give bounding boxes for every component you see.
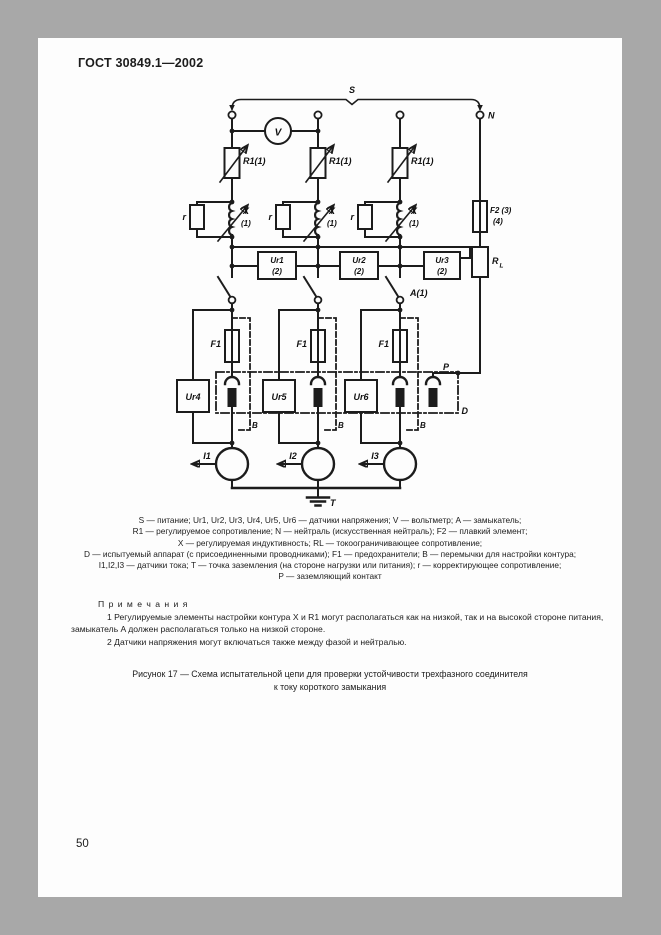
notes-heading: П р и м е ч а н и я [71,598,623,611]
phase-terminal [314,111,321,118]
voltmeter: V [230,118,321,144]
switch-hinge [397,297,404,304]
label-p: P [443,362,450,372]
supply-bracket: S [229,85,483,111]
current-sensor [216,448,248,480]
bracket-arrow-right [477,105,483,111]
label-rl: R [492,256,499,266]
label-ur2: Ur2 [352,256,366,265]
current-sensor-label: I3 [371,451,379,461]
legend-line: X — регулируемая индуктивность; RL — ток… [40,538,620,549]
label-b: B [338,421,344,430]
label-supply-s: S [349,85,355,95]
contact-socket [393,377,407,384]
inductor-x-coil [397,203,400,235]
label-ur3-note: (2) [437,267,447,276]
label-f2-note: (4) [493,217,503,226]
voltage-sensor-bus: Ur1 (2) Ur2 (2) Ur3 (2) [232,247,470,279]
label-f2: F2 (3) [490,206,512,215]
label-closer-a: A(1) [409,288,428,298]
label-f1: F1 [378,339,389,349]
label-r1: R1(1) [411,156,434,166]
figure-caption-line: Рисунок 17 — Схема испытательной цепи дл… [70,668,590,681]
pole-sensor-label: Ur4 [185,392,200,402]
legend-line: R1 — регулируемое сопротивление; N — ней… [40,526,620,537]
resistor-r-box [358,205,372,229]
inductor-x-coil [315,203,318,235]
label-ur1: Ur1 [270,256,284,265]
neutral-terminal [476,111,483,118]
earthing-contact-socket [426,377,440,384]
legend-line: S — питание; Ur1, Ur2, Ur3, Ur4, Ur5, Ur… [40,515,620,526]
contact-pin [314,388,323,407]
inductor-x-coil [229,203,232,235]
phase-column-3: R1(1) r X (1) F1 B Ur6 I3 [345,111,434,488]
phase-column-1: R1(1) r X (1) F1 B Ur4 I1 [177,111,266,488]
label-x-note: (1) [241,219,251,228]
label-ur2-note: (2) [354,267,364,276]
label-d: D [462,406,469,416]
pole-sensor-label: Ur6 [353,392,369,402]
resistor-r-box [190,205,204,229]
device-under-test-boundary [216,372,458,413]
current-sensor-label: I1 [203,451,211,461]
legend-line: D — испытуемый аппарат (с присоединенным… [40,549,620,560]
phase-column-2: R1(1) r X (1) F1 B Ur5 I2 [263,111,352,488]
voltmeter-label: V [275,128,283,139]
switch-hinge [315,297,322,304]
limiting-resistor-rl-box [472,247,488,277]
switch-blade [304,277,317,297]
label-ur1-note: (2) [272,267,282,276]
label-r: r [350,212,354,222]
pole-sensor-label: Ur5 [271,392,287,402]
label-t: T [330,498,337,508]
label-x: X [328,206,336,216]
label-n: N [488,111,495,121]
note-item: 2 Датчики напряжения могут включаться та… [71,636,623,649]
label-ur3: Ur3 [435,256,449,265]
contact-pin [396,388,405,407]
current-sensor [302,448,334,480]
phase-terminal [396,111,403,118]
label-r1: R1(1) [243,156,266,166]
label-r: r [182,212,186,222]
earth-bus: T [232,488,400,508]
label-x-note: (1) [409,219,419,228]
earthing-contact-pin [429,388,438,407]
figure-caption-line: к току короткого замыкания [70,681,590,694]
scanned-standard-page: ГОСТ 30849.1—2002 S V [0,0,661,935]
figure-caption: Рисунок 17 — Схема испытательной цепи дл… [70,668,590,694]
label-f1: F1 [296,339,307,349]
legend-line: P — заземляющий контакт [40,571,620,582]
page-number: 50 [76,838,89,850]
label-x-note: (1) [327,219,337,228]
contact-socket [311,377,325,384]
notes-block: П р и м е ч а н и я 1 Регулируемые элеме… [71,598,623,648]
test-circuit-diagram: S V R1(1) r X (1) [0,0,661,935]
label-r1: R1(1) [329,156,352,166]
switch-blade [386,277,399,297]
contact-pin [228,388,237,407]
figure-legend: S — питание; Ur1, Ur2, Ur3, Ur4, Ur5, Ur… [40,515,620,583]
label-b: B [420,421,426,430]
label-x: X [410,206,418,216]
label-x: X [242,206,250,216]
contact-socket [225,377,239,384]
current-sensor [384,448,416,480]
bracket-arrow-left [229,105,235,111]
label-rl-sub: L [500,263,504,270]
label-f1: F1 [210,339,221,349]
phase-terminal [228,111,235,118]
switch-blade [218,277,231,297]
label-b: B [252,421,258,430]
note-item: 1 Регулируемые элементы настройки контур… [71,611,623,636]
resistor-r-box [276,205,290,229]
label-r: r [268,212,272,222]
switch-hinge [229,297,236,304]
current-sensor-label: I2 [289,451,297,461]
legend-line: I1,I2,I3 — датчики тока; T — точка зазем… [40,560,620,571]
